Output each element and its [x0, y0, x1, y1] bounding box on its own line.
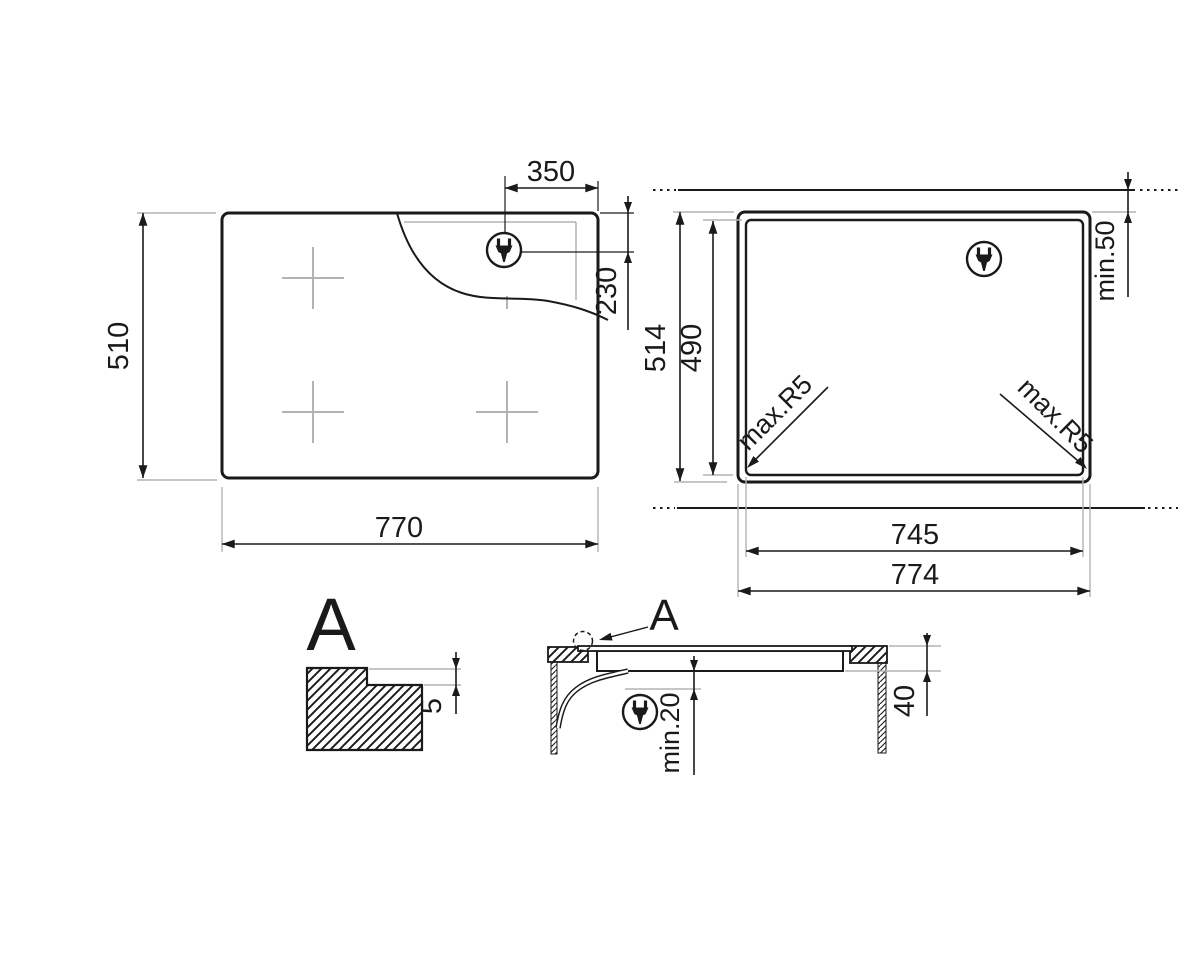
worktop-cutout-view: 514 490 min.50 max.R5 max.R5: [640, 172, 1178, 597]
dim-hob-width: 770: [375, 512, 423, 544]
technical-drawing-canvas: 350 230 510 770: [0, 0, 1200, 959]
detail-a-reference: A: [649, 591, 679, 640]
dim-cutout-width: 745: [891, 519, 939, 551]
worktop-section-right: [850, 646, 887, 663]
dimension-hob-height: 510: [103, 213, 217, 480]
dim-step-depth: 5: [416, 698, 448, 714]
dimension-wall-clearance: min.50: [1090, 172, 1136, 302]
dimension-cutout-width: 745: [746, 477, 1083, 557]
dim-wall-clearance: min.50: [1090, 220, 1120, 301]
power-plug-icon: [487, 233, 521, 267]
detail-a-title: A: [306, 583, 356, 666]
power-plug-icon: [967, 242, 1001, 276]
dim-cutout-height: 490: [676, 324, 708, 372]
dim-rim-width: 774: [891, 559, 939, 591]
hob-glass-section: [578, 646, 852, 651]
detail-a-callout: A: [574, 591, 680, 651]
hob-top-view: 350 230 510 770: [103, 156, 634, 552]
hob-body-section: [597, 651, 843, 671]
dim-body-depth: 40: [889, 685, 921, 717]
cabinet-wall-left: [551, 662, 557, 754]
dim-rim-height: 514: [640, 324, 672, 372]
worktop-section-block: [307, 668, 422, 750]
dim-hob-height: 510: [103, 322, 135, 370]
installation-section-view: A min.20 40: [548, 591, 941, 775]
dim-plug-from-top: 230: [591, 267, 623, 315]
cutout-outline: [746, 220, 1083, 475]
dim-plug-from-right: 350: [527, 156, 575, 188]
hob-outline: [222, 213, 598, 478]
detail-a-view: A 5: [306, 583, 461, 750]
dimension-hob-width: 770: [222, 487, 598, 552]
dim-clearance-below: min.20: [655, 692, 685, 773]
power-plug-icon: [623, 695, 657, 729]
power-cable: [558, 671, 628, 728]
installation-diagram: 350 230 510 770: [0, 0, 1200, 959]
cabinet-wall-right: [878, 663, 886, 753]
